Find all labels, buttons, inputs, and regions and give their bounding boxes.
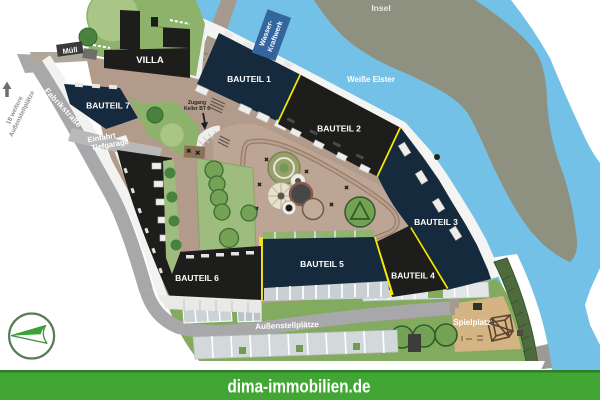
svg-text:BAUTEIL 4: BAUTEIL 4 xyxy=(391,271,435,281)
svg-text:BAUTEIL 5: BAUTEIL 5 xyxy=(300,259,344,269)
svg-text:VILLA: VILLA xyxy=(136,55,164,66)
svg-text:Insel: Insel xyxy=(371,3,390,13)
svg-text:Keller BT 6: Keller BT 6 xyxy=(184,106,210,112)
svg-text:BAUTEIL 1: BAUTEIL 1 xyxy=(227,74,271,84)
svg-text:Weiße Elster: Weiße Elster xyxy=(347,75,395,84)
svg-text:Spielplatz: Spielplatz xyxy=(453,318,490,327)
svg-text:BAUTEIL 2: BAUTEIL 2 xyxy=(317,124,361,134)
svg-text:BAUTEIL 7: BAUTEIL 7 xyxy=(86,101,130,111)
svg-text:BAUTEIL 3: BAUTEIL 3 xyxy=(414,217,458,227)
svg-text:BAUTEIL 6: BAUTEIL 6 xyxy=(175,273,219,283)
svg-text:dima-immobilien.de: dima-immobilien.de xyxy=(228,376,371,397)
